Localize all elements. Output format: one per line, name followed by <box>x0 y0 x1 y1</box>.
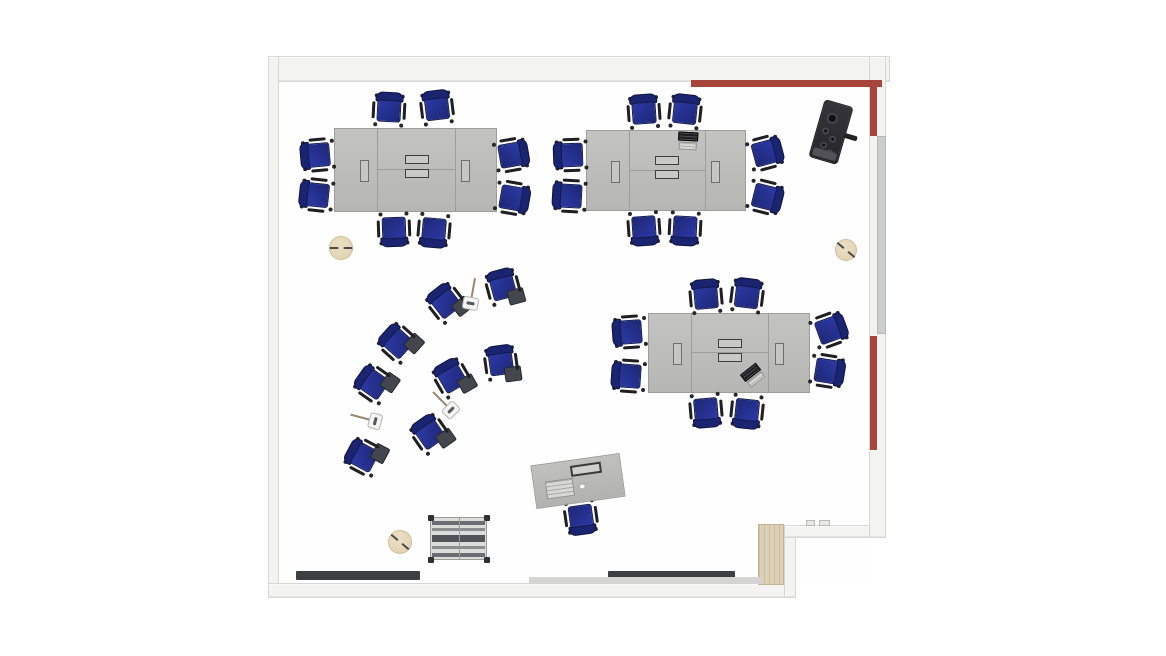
chair-seat <box>424 97 451 122</box>
floor-plan <box>0 0 1166 656</box>
floor-ramp <box>529 577 762 584</box>
chair-seat <box>672 215 697 238</box>
task-chair[interactable] <box>552 137 589 172</box>
cart-post <box>484 557 490 563</box>
worktable[interactable] <box>648 313 810 393</box>
chair-seat <box>307 142 331 168</box>
worktable[interactable] <box>334 128 497 212</box>
chair-seat <box>559 183 582 208</box>
task-chair[interactable] <box>728 391 766 430</box>
wall-left <box>268 56 279 598</box>
table-power-unit <box>360 160 369 182</box>
chair-seat <box>421 217 447 241</box>
media-cart-knob <box>821 127 830 136</box>
chair-seat <box>734 398 760 422</box>
stool-seam <box>401 543 409 550</box>
round-stool[interactable] <box>329 236 353 260</box>
table-accessory <box>405 155 429 164</box>
media-cart-knob <box>828 135 837 144</box>
table-power-unit <box>673 343 682 365</box>
chair-tablet-arm <box>504 365 523 382</box>
laptop[interactable] <box>678 131 699 150</box>
stool-seam <box>847 251 855 258</box>
chair-seat <box>382 217 407 240</box>
red-accent-wall-right-lower <box>870 336 877 450</box>
cart-post <box>428 515 434 521</box>
laptop-screen <box>678 131 698 141</box>
task-chair[interactable] <box>611 314 649 350</box>
task-chair[interactable] <box>610 358 648 394</box>
laptop-keyboard <box>679 142 697 151</box>
tablet-arm-chair[interactable] <box>482 343 521 383</box>
chair-seat <box>813 357 838 384</box>
media-cart-knob <box>826 112 840 126</box>
task-chair[interactable] <box>687 391 724 430</box>
task-chair[interactable] <box>491 178 532 218</box>
media-cart-base <box>812 147 837 161</box>
task-chair[interactable] <box>551 178 589 214</box>
task-chair[interactable] <box>807 351 848 390</box>
task-chair[interactable] <box>376 210 411 247</box>
task-chair[interactable] <box>297 176 336 214</box>
cart-post <box>484 515 490 521</box>
mouse[interactable] <box>578 483 586 490</box>
task-chair[interactable] <box>667 209 703 247</box>
worktable[interactable] <box>586 130 746 211</box>
chair-seat <box>306 182 330 208</box>
chair-seat <box>497 141 523 168</box>
chair-seat <box>672 101 698 125</box>
table-power-unit <box>775 343 784 365</box>
door-handle[interactable] <box>806 520 815 526</box>
task-chair[interactable] <box>490 135 531 175</box>
cart-post <box>428 557 434 563</box>
wall-rail-strip <box>296 571 420 580</box>
table-accessory <box>718 353 742 362</box>
chair-seat <box>693 397 719 421</box>
chair-seat <box>618 363 642 388</box>
chair-seat <box>619 319 643 344</box>
table-seam <box>768 314 769 392</box>
table-accessory <box>718 339 742 348</box>
round-stool[interactable] <box>388 530 412 554</box>
door-panel[interactable] <box>758 524 784 585</box>
table-accessory <box>655 156 679 165</box>
red-accent-wall-top <box>691 80 882 87</box>
round-stool[interactable] <box>835 239 857 261</box>
table-accessory <box>405 169 429 178</box>
table-seam <box>377 129 378 211</box>
task-chair[interactable] <box>371 91 407 129</box>
table-seam <box>705 131 706 210</box>
stool-seam <box>391 534 399 541</box>
chair-seat <box>567 503 594 528</box>
task-chair[interactable] <box>728 276 766 316</box>
stool-seam <box>330 247 339 249</box>
chair-seat <box>734 285 761 310</box>
music-stand-pole <box>350 414 370 421</box>
table-seam <box>455 129 456 211</box>
wall-top <box>268 56 890 82</box>
task-chair[interactable] <box>626 209 662 247</box>
task-chair[interactable] <box>418 88 456 128</box>
chair-seat <box>376 99 401 122</box>
stool-seam <box>837 242 845 249</box>
storage-cart[interactable] <box>430 517 487 560</box>
desk-laptop[interactable] <box>545 478 575 500</box>
chair-seat <box>498 184 524 211</box>
task-chair[interactable] <box>666 92 704 131</box>
task-chair[interactable] <box>299 136 338 173</box>
stool-seam <box>344 247 353 249</box>
cart-divider <box>459 518 460 559</box>
task-chair[interactable] <box>415 211 452 250</box>
music-stand-pole <box>470 278 475 298</box>
wall-bottom <box>268 583 796 598</box>
chair-seat <box>631 101 656 125</box>
red-accent-wall-right-upper <box>870 86 877 136</box>
table-accessory <box>655 170 679 179</box>
table-power-unit <box>711 161 720 183</box>
door-handle[interactable] <box>819 520 830 526</box>
desk-document-tray <box>570 462 602 477</box>
wall-mounted-board <box>877 136 886 334</box>
table-seam <box>691 314 692 392</box>
chair-seat <box>693 286 719 310</box>
table-power-unit <box>461 160 470 182</box>
chair-seat <box>561 143 584 168</box>
task-chair[interactable] <box>626 93 662 131</box>
task-chair[interactable] <box>687 278 724 317</box>
chair-seat <box>631 215 656 239</box>
table-power-unit <box>611 161 620 183</box>
